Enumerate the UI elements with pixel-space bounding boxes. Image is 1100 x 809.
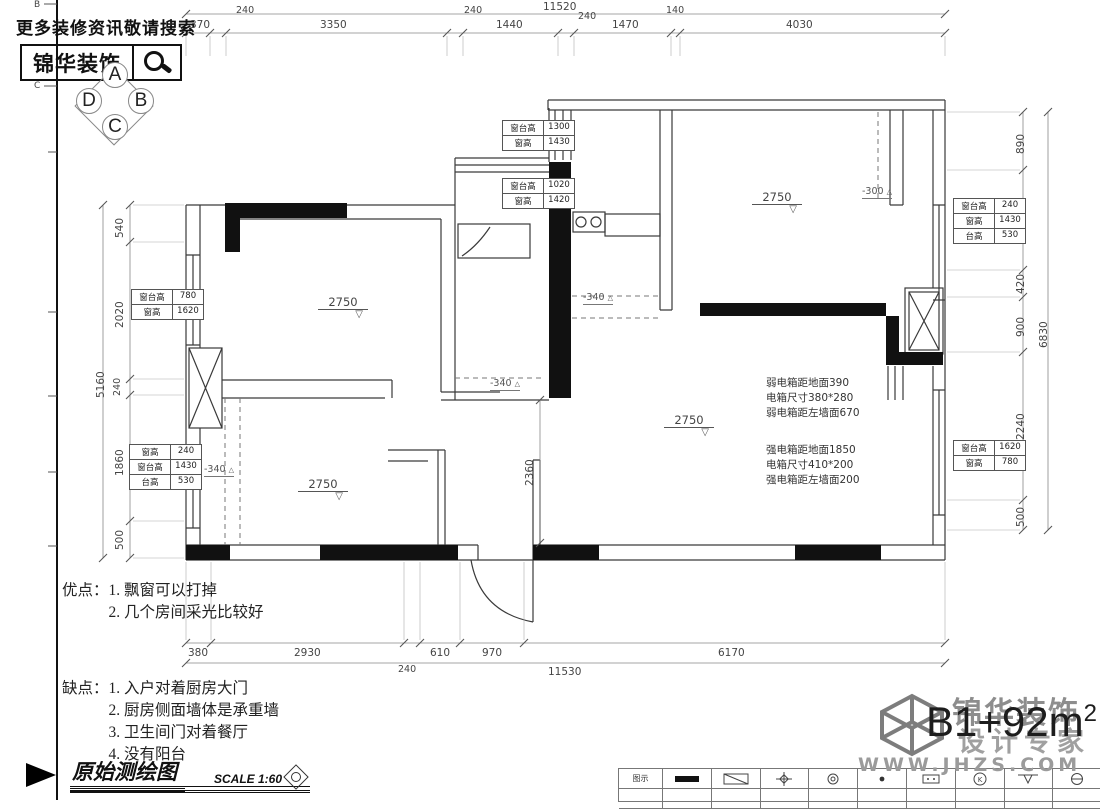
frame-row-letter: C [34, 81, 40, 91]
compass-letter-c: C [102, 114, 128, 140]
window-table: 窗台高780 窗高1620 [131, 289, 204, 320]
compass-letter-b: B [128, 88, 154, 114]
legend-wall-symbol [663, 769, 712, 789]
dim-label: 2020 [114, 301, 126, 328]
legend-cross-symbol [761, 769, 810, 789]
ceiling-level-marker: 2750▽ [752, 191, 802, 205]
dim-label: 140 [666, 5, 684, 16]
pros-note: 优点： 1. 飘窗可以打掉2. 几个房间采光比较好 [62, 580, 264, 624]
floorplan-page: { "header": {"search_hint": "更多装修资讯敬请搜索"… [0, 0, 1100, 800]
ceiling-drop-marker: -340 △ [204, 464, 234, 477]
frame-row-letter: B [34, 0, 40, 10]
level-triangle-icon: ▽ [701, 426, 709, 439]
weak-electric-note: 弱电箱距地面390电箱尺寸380*280弱电箱距左墙面670 [766, 376, 860, 421]
svg-text:K: K [977, 776, 982, 784]
dim-label: 370 [190, 19, 210, 31]
dimension-lines [103, 14, 1048, 663]
dim-label: 3350 [320, 19, 347, 31]
dim-interior: 2360 [524, 459, 536, 486]
ceiling-drop-marker: -300 △ [862, 186, 892, 199]
dim-right-total: 6830 [1038, 321, 1050, 348]
legend-double-circle-symbol [809, 769, 858, 789]
dim-top-total: 11520 [543, 1, 576, 13]
dim-label: 1860 [114, 449, 126, 476]
drop-triangle-icon: △ [515, 380, 520, 388]
dim-label: 1440 [496, 19, 523, 31]
dim-label: 500 [114, 530, 126, 550]
dim-label: 240 [236, 5, 254, 16]
ceiling-level-marker: 2750▽ [298, 478, 348, 492]
dim-label: 540 [114, 218, 126, 238]
level-triangle-icon: ▽ [789, 203, 797, 216]
ceiling-level-marker: 2750▽ [664, 414, 714, 428]
dim-label: 380 [188, 647, 208, 659]
ceiling-drop-marker: -340 △ [583, 292, 613, 305]
window-table: 窗台高1620 窗高780 [953, 440, 1026, 471]
strong-electric-note: 强电箱距地面1850电箱尺寸410*200强电箱距左墙面200 [766, 443, 860, 488]
legend-header-cell: 图示 [619, 769, 663, 789]
compass-letter-a: A [102, 62, 128, 88]
apartment-area-label: B1+92m2 [926, 698, 1097, 746]
title-arrow-icon [26, 763, 56, 787]
dim-label: 240 [398, 664, 416, 675]
dim-label: 890 [1015, 134, 1027, 154]
drop-triangle-icon: △ [887, 188, 892, 196]
level-triangle-icon: ▽ [355, 308, 363, 321]
dim-label: 900 [1015, 317, 1027, 337]
level-triangle-icon: ▽ [335, 490, 343, 503]
website-url: WWW.JHZS.COM [858, 754, 1081, 776]
dim-left-total: 5160 [95, 371, 107, 398]
dim-label: 240 [464, 5, 482, 16]
dim-label: 610 [430, 647, 450, 659]
dim-label: 6170 [718, 647, 745, 659]
compass-rose: A B C D [72, 62, 156, 150]
dim-label: 970 [482, 647, 502, 659]
legend-hatch-symbol [712, 769, 761, 789]
window-table: 窗台高1020 窗高1420 [502, 178, 575, 209]
search-hint-text: 更多装修资讯敬请搜索 [16, 14, 196, 39]
dim-bottom-total: 11530 [548, 666, 581, 678]
dim-label: 1470 [612, 19, 639, 31]
dim-label: 420 [1015, 274, 1027, 294]
dim-label: 2240 [1015, 413, 1027, 440]
window-table: 窗台高1300 窗高1430 [502, 120, 575, 151]
title-underline [70, 786, 310, 793]
drawing-scale: SCALE 1:60 [214, 772, 282, 786]
drop-triangle-icon: △ [608, 294, 613, 302]
window-table: 窗台高240 窗高1430 台高530 [953, 198, 1026, 244]
dim-label: 240 [578, 11, 596, 22]
bearing-walls [186, 162, 943, 560]
dim-label: 240 [112, 378, 123, 396]
dim-label: 500 [1015, 507, 1027, 527]
ceiling-level-marker: 2750▽ [318, 296, 368, 310]
dim-label: 4030 [786, 19, 813, 31]
window-table: 窗高240 窗台高1430 台高530 [129, 444, 202, 490]
ceiling-drop-marker: -340 △ [490, 378, 520, 391]
compass-letter-d: D [76, 88, 102, 114]
dim-label: 2930 [294, 647, 321, 659]
cons-note: 缺点： 1. 入户对着厨房大门2. 厨房侧面墙体是承重墙 3. 卫生间门对着餐厅… [62, 678, 279, 766]
drop-triangle-icon: △ [229, 466, 234, 474]
